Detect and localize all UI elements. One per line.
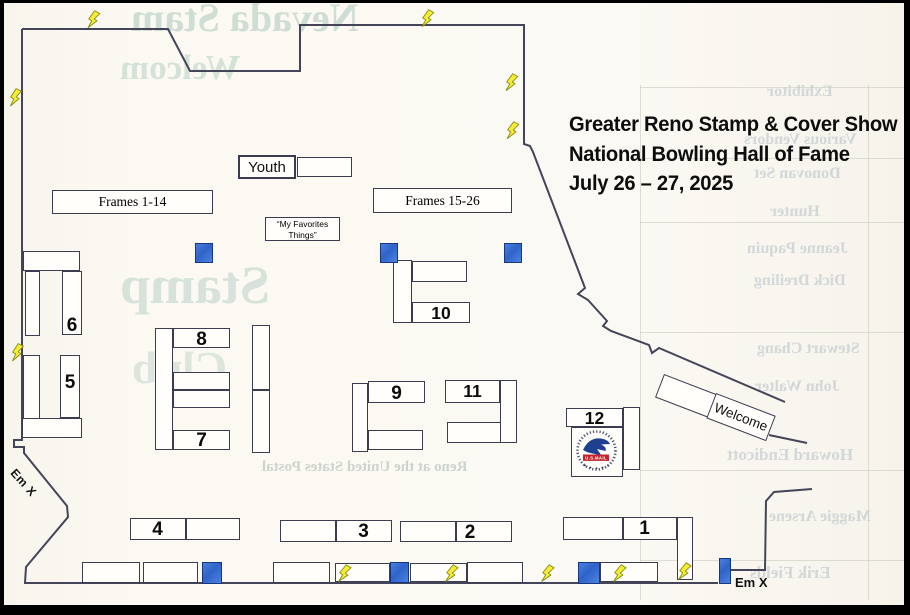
frames-1-14-box: Frames 1-14 [52, 190, 213, 214]
favorites-label-line1: “My Favorites [266, 219, 339, 230]
table-rect [410, 563, 467, 582]
table-rect [600, 562, 658, 582]
table-rect [25, 271, 40, 336]
youth-area-box: Youth [238, 155, 296, 179]
table-rect [252, 325, 270, 390]
table-rect [22, 418, 82, 438]
ghost-grid-line [640, 332, 904, 333]
table-rect [623, 407, 640, 470]
show-title-line2: National Bowling Hall of Fame [569, 140, 897, 170]
floorplan-page: Nevada Stam Welcom Stamp Club Exhibitor … [0, 0, 910, 615]
booth-number-4: 4 [130, 520, 185, 539]
table-rect [273, 562, 330, 583]
table-rect [447, 422, 503, 443]
table-rect [143, 562, 198, 583]
table-rect [467, 562, 523, 583]
ghost-grid-line [640, 222, 904, 223]
booth-number-12: 12 [566, 410, 623, 428]
booth-number-11: 11 [445, 383, 500, 401]
table-rect [393, 260, 412, 323]
usps-logo-icon: U.S.MAIL [572, 428, 621, 475]
table-rect [23, 355, 40, 420]
table-rect [155, 328, 173, 450]
booth-number-6: 6 [62, 316, 82, 335]
booth-number-1: 1 [622, 519, 667, 538]
table-rect [368, 430, 423, 450]
table-rect [352, 383, 368, 452]
blue-power-marker [578, 562, 600, 584]
ghost-grid-line [640, 470, 904, 471]
favorites-label-line2: Things” [266, 230, 339, 241]
frames-15-26-label: Frames 15-26 [405, 193, 480, 209]
booth-number-10: 10 [412, 305, 470, 323]
booth-number-3: 3 [335, 522, 392, 541]
table-rect [677, 517, 693, 580]
show-title-line1: Greater Reno Stamp & Cover Show [569, 110, 897, 140]
table-divider [185, 519, 187, 539]
show-title-line3: July 26 – 27, 2025 [569, 169, 897, 199]
frames-1-14-label: Frames 1-14 [99, 194, 167, 210]
blue-power-marker [202, 562, 222, 584]
table-rect [500, 380, 517, 443]
blue-power-marker [380, 243, 398, 263]
usps-mail-text: U.S.MAIL [585, 456, 607, 461]
table-rect [297, 157, 352, 177]
table-rect [23, 251, 80, 271]
usps-eagle-icon [583, 438, 610, 455]
booth-number-9: 9 [368, 384, 425, 403]
blue-power-marker [504, 243, 522, 263]
table-rect [173, 372, 230, 390]
blue-power-marker [390, 562, 409, 583]
table-rect [335, 563, 390, 582]
youth-label: Youth [248, 159, 286, 176]
blue-power-marker [195, 243, 213, 263]
table-rect [173, 390, 230, 408]
blue-exit-marker [719, 558, 731, 584]
table-rect [82, 562, 140, 583]
table-rect [412, 261, 467, 282]
favorites-box: “My Favorites Things” [265, 217, 340, 241]
frames-15-26-box: Frames 15-26 [373, 188, 512, 213]
usps-booth-box: U.S.MAIL [571, 427, 623, 477]
booth-number-7: 7 [173, 431, 230, 450]
table-rect [252, 390, 270, 453]
booth-number-5: 5 [60, 373, 80, 392]
booth-number-8: 8 [173, 330, 230, 349]
ghost-grid-line [640, 87, 904, 88]
booth-number-2: 2 [456, 523, 484, 542]
emergency-exit-right-label: Em X [735, 575, 768, 590]
show-title: Greater Reno Stamp & Cover Show National… [569, 110, 897, 199]
